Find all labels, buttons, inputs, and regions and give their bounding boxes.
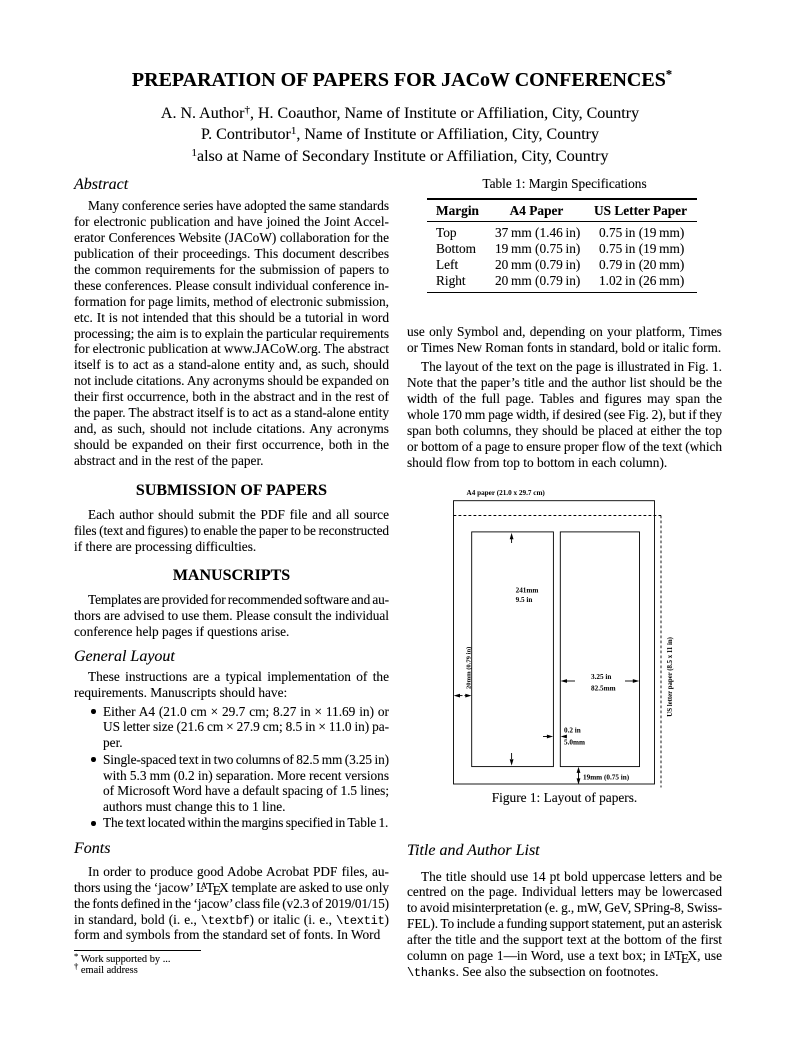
svg-text:20mm (0.79 in): 20mm (0.79 in) xyxy=(465,647,472,689)
svg-text:3.25 in: 3.25 in xyxy=(591,673,611,681)
svg-text:9.5 in: 9.5 in xyxy=(516,596,533,604)
svg-text:82.5mm: 82.5mm xyxy=(591,685,616,693)
svg-text:0.2 in: 0.2 in xyxy=(564,727,581,735)
svg-text:19mm (0.75 in): 19mm (0.75 in) xyxy=(583,774,630,782)
svg-text:A4 paper (21.0 x 29.7 cm): A4 paper (21.0 x 29.7 cm) xyxy=(467,489,546,497)
svg-text:US letter paper (8.5 x 11 in): US letter paper (8.5 x 11 in) xyxy=(667,637,674,717)
svg-text:5.0mm: 5.0mm xyxy=(564,739,585,747)
svg-text:241mm: 241mm xyxy=(516,586,539,594)
